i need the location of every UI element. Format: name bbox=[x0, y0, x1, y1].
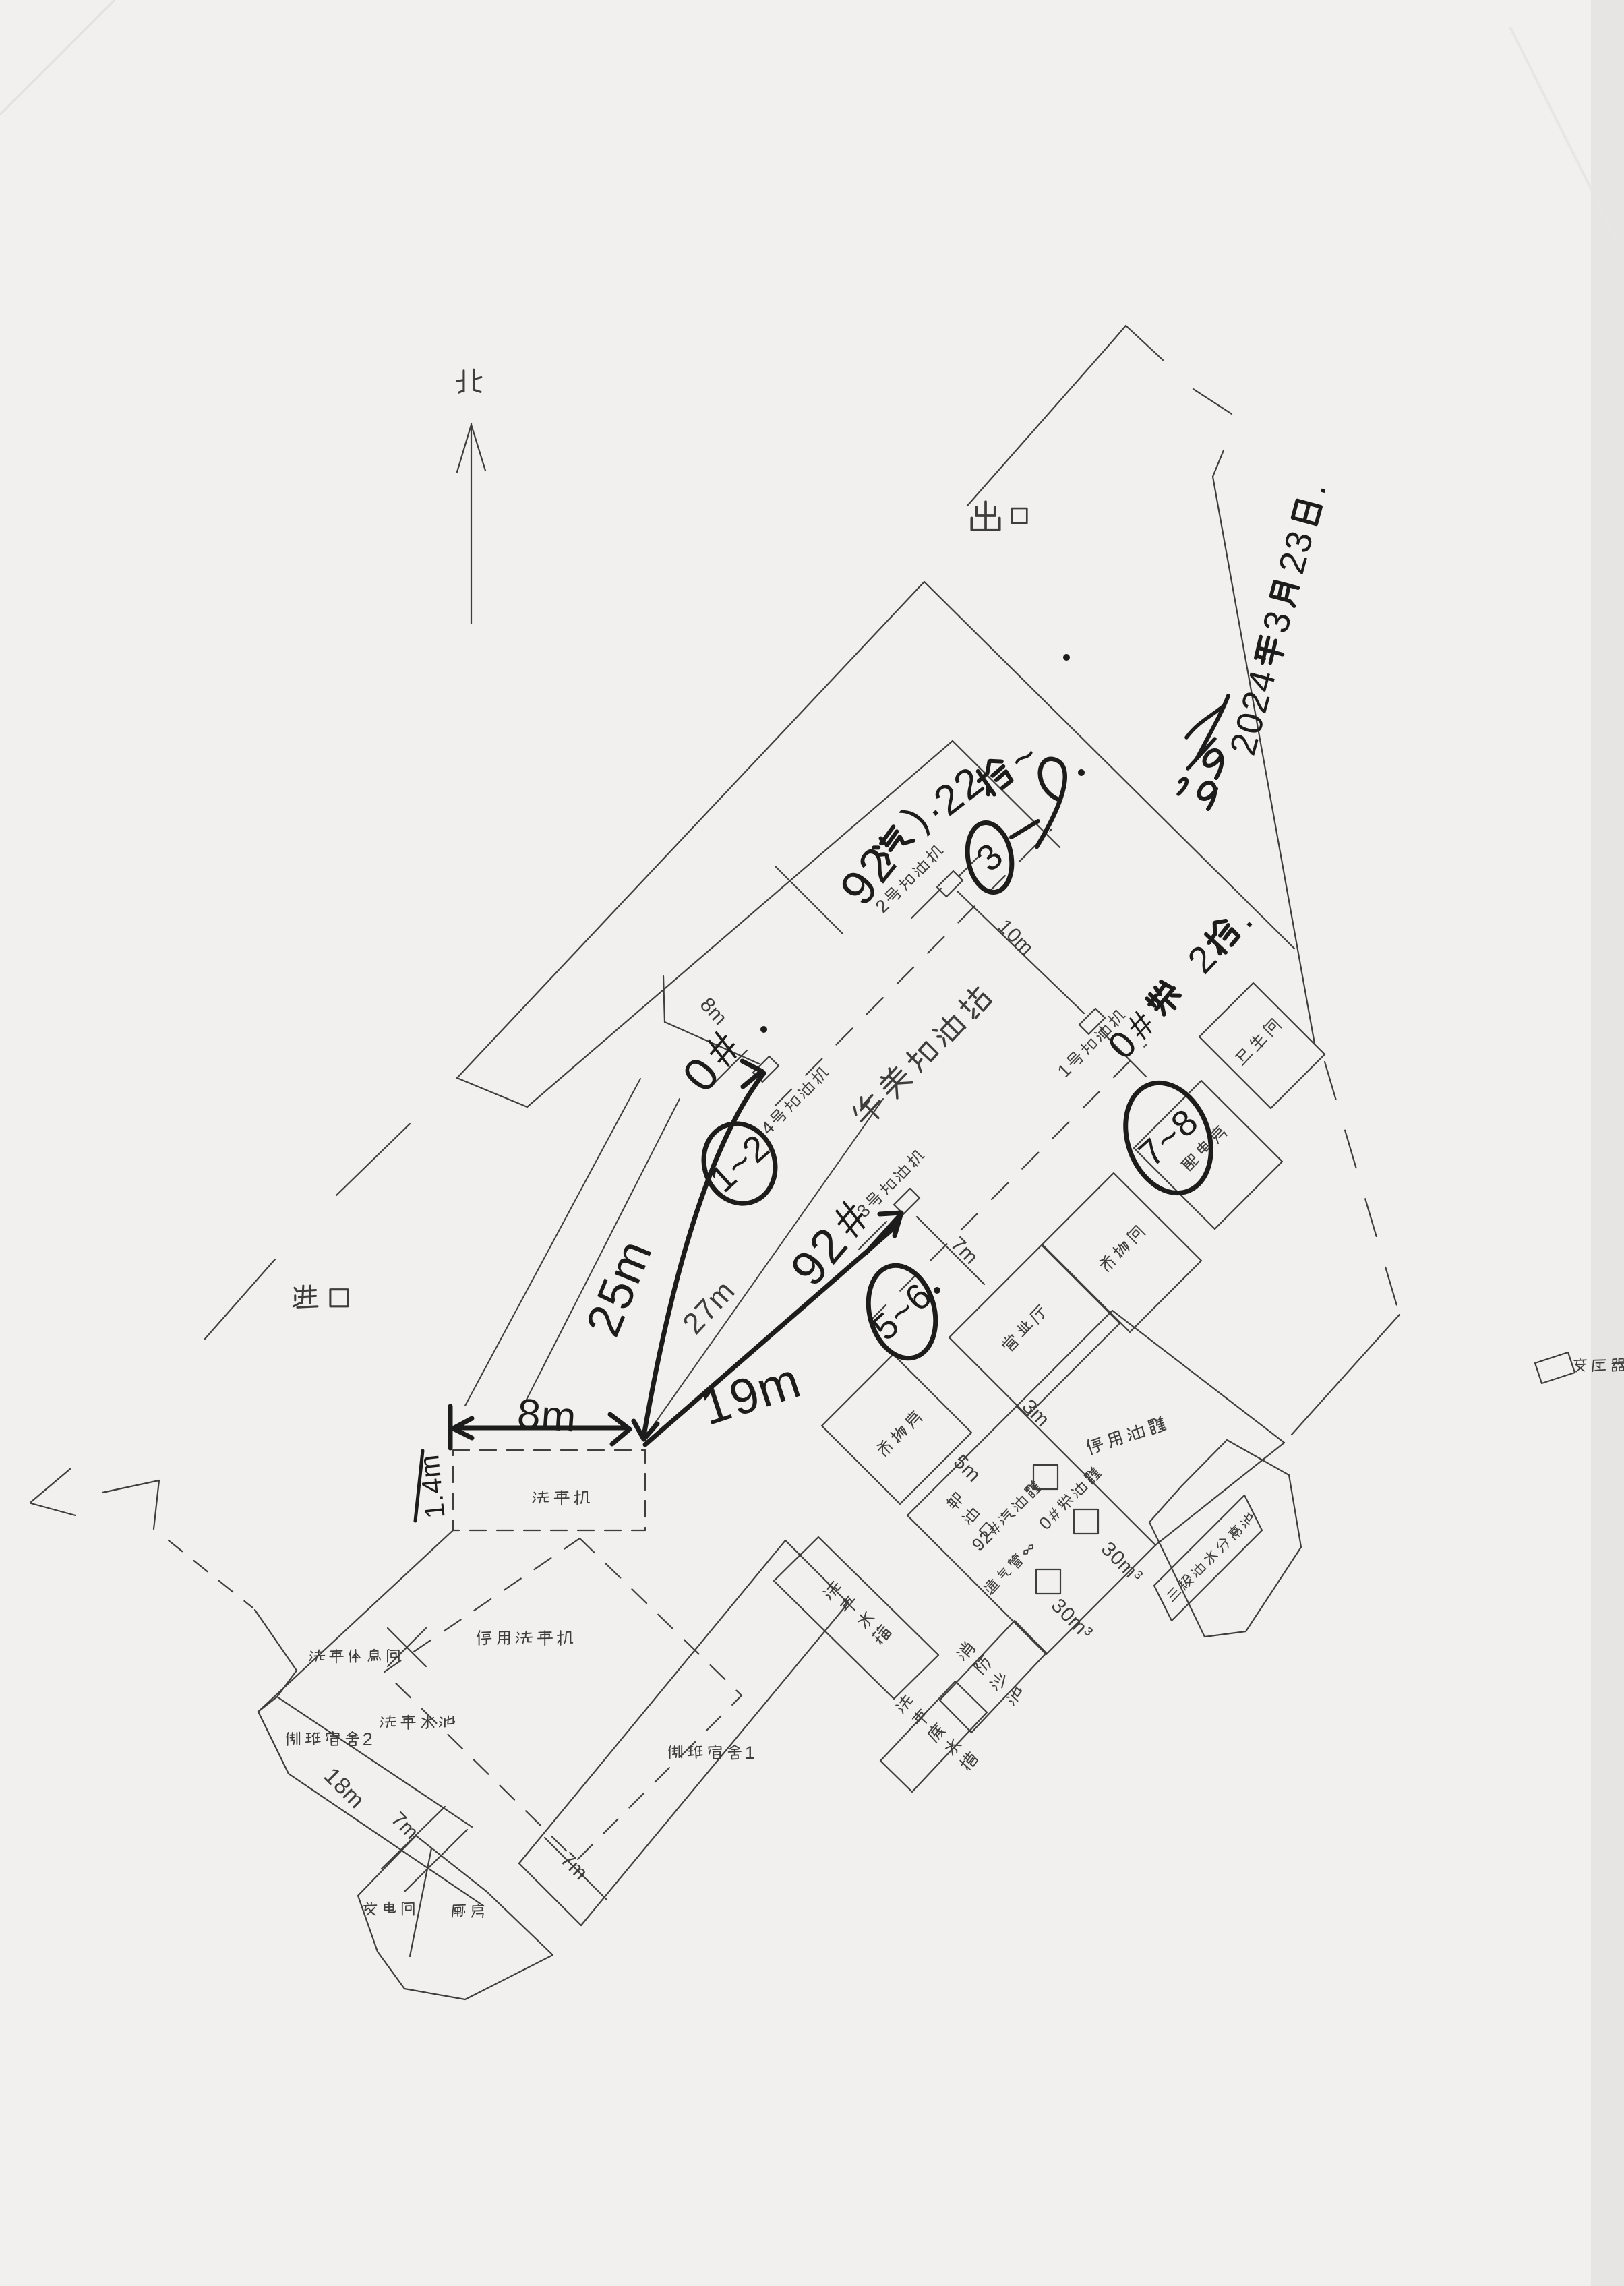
svg-text:8: 8 bbox=[516, 1391, 542, 1439]
svg-text:2: 2 bbox=[363, 1729, 373, 1749]
svg-text:m: m bbox=[413, 1453, 446, 1480]
svg-text:m: m bbox=[539, 1392, 577, 1441]
svg-text:1: 1 bbox=[745, 1743, 755, 1763]
svg-text:1: 1 bbox=[419, 1501, 451, 1520]
